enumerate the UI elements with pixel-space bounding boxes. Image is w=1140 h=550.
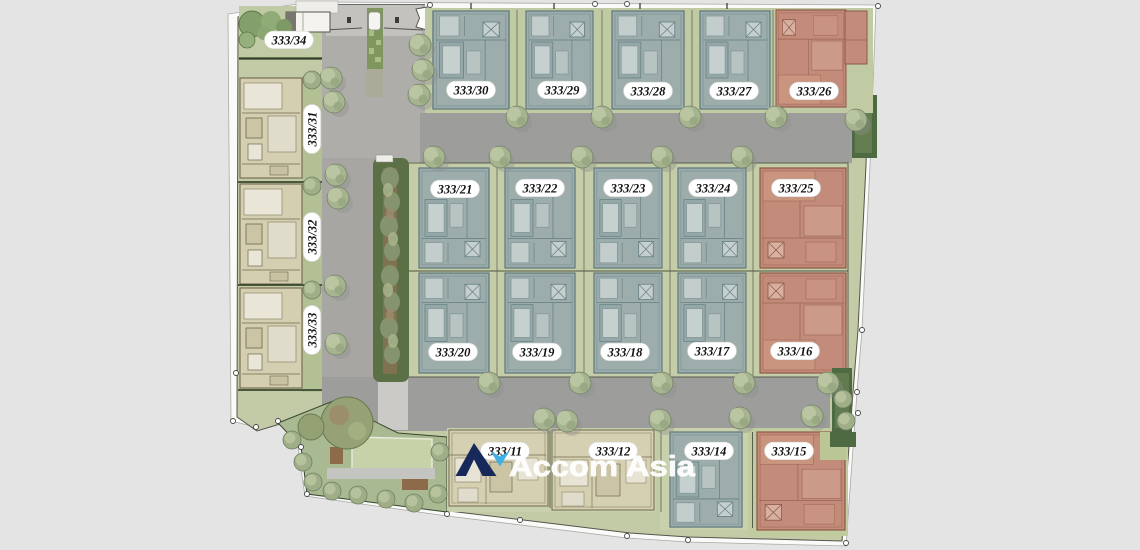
svg-text:333/26: 333/26 (796, 85, 832, 99)
svg-text:333/17: 333/17 (694, 345, 730, 359)
svg-text:333/28: 333/28 (630, 85, 666, 99)
svg-text:Accom Asia: Accom Asia (509, 451, 696, 483)
svg-text:333/16: 333/16 (777, 345, 813, 359)
svg-text:333/19: 333/19 (519, 346, 555, 360)
svg-text:333/34: 333/34 (271, 34, 307, 48)
svg-text:333/33: 333/33 (306, 313, 320, 349)
svg-text:333/29: 333/29 (544, 84, 580, 98)
svg-text:333/30: 333/30 (453, 84, 489, 98)
svg-text:333/25: 333/25 (778, 182, 814, 196)
svg-text:333/24: 333/24 (695, 182, 731, 196)
svg-text:333/31: 333/31 (306, 112, 320, 148)
svg-text:333/22: 333/22 (522, 182, 558, 196)
svg-text:333/32: 333/32 (306, 220, 320, 256)
svg-text:333/15: 333/15 (771, 445, 807, 459)
svg-text:333/18: 333/18 (607, 346, 643, 360)
svg-text:333/14: 333/14 (691, 445, 727, 459)
svg-text:333/23: 333/23 (610, 182, 646, 196)
svg-text:333/27: 333/27 (716, 85, 752, 99)
svg-text:333/20: 333/20 (435, 346, 471, 360)
svg-text:333/21: 333/21 (437, 183, 473, 197)
